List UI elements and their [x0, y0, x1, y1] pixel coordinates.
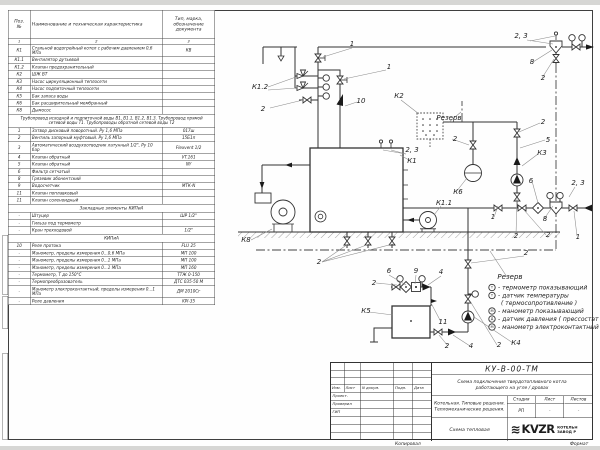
spec-header-name: Наименование и техническая характеристик…	[30, 10, 162, 39]
spec-cell-type	[162, 190, 214, 197]
spec-row: 6Фильтр сетчатый	[8, 168, 215, 175]
spec-cell-pos: -	[8, 227, 30, 234]
logo-caption: КОТЕЛЬН ЗАВОД Р	[557, 425, 577, 434]
spec-cell-name: Клапан обратный	[30, 161, 162, 168]
schematic-label: 2	[497, 341, 502, 349]
schematic-label: К1	[407, 157, 416, 165]
spec-cell-pos: 11	[8, 190, 30, 197]
sheet-value: -	[536, 404, 564, 419]
schematic-label: 11	[439, 318, 448, 326]
spec-row: Трубопровод исходной и подпиточной воды …	[8, 114, 215, 127]
schematic-label: 2	[514, 232, 519, 240]
spec-cell-pos: К8	[8, 107, 30, 114]
spec-cell-name: Термометр, Т до 150°С	[30, 271, 162, 278]
schematic-label: 2, 3	[571, 179, 584, 187]
spec-cell-pos: -	[8, 286, 30, 298]
spec-cell-type: 017ш	[162, 127, 214, 134]
spec-section-title: КИПиА	[8, 234, 215, 242]
schematic-label: 1	[491, 213, 495, 221]
spec-row: -Манометр, пределы измерения 0...1 МПаМП…	[8, 257, 215, 264]
schematic-label: 8	[530, 58, 535, 66]
spec-cell-type	[162, 93, 214, 100]
spec-row: К8Дымосос	[8, 107, 215, 114]
spec-row: 11Клапан соленоидный	[8, 197, 215, 204]
schematic-label: 4	[469, 342, 473, 350]
schematic-label: К4	[511, 339, 520, 347]
spec-row: -Манометр электроконтактный, пределы изм…	[8, 286, 215, 298]
schematic-label: 2	[524, 249, 529, 257]
spec-cell-type	[162, 168, 214, 175]
spec-header-row: Поз. № Наименование и техническая характ…	[8, 10, 215, 39]
spec-cell-pos: 4	[8, 154, 30, 161]
spec-cell-type: 15Б1п	[162, 134, 214, 141]
spec-row: К1.1Вентилятор дутьевой	[8, 56, 215, 63]
spec-cell-type: KPI-35	[162, 298, 214, 305]
legend-item: - датчик давления ( прессостат )	[498, 316, 600, 323]
document-code: КУ-В-00-ТМ	[431, 363, 592, 375]
spec-cell-name: Водосчетчик	[30, 182, 162, 189]
schematic-label: К3	[537, 149, 546, 157]
spec-cell-pos: -	[8, 212, 30, 219]
schematic-label: 1	[350, 40, 354, 48]
schematic-label: 2	[372, 279, 377, 287]
spec-row: 9ВодосчетчикМТК-N	[8, 182, 215, 189]
spec-cell-pos: К5	[8, 93, 30, 100]
spec-cell-pos: К6	[8, 100, 30, 107]
spec-row: 1Затвор дисковый поворотный. Ру 1,6 МПа0…	[8, 127, 215, 134]
schematic-label: 4	[439, 268, 443, 276]
spec-row: 4Клапан обратныйVT.161	[8, 154, 215, 161]
spec-cell-name: ШЖ ВТ	[30, 71, 162, 78]
spec-cell-type	[162, 78, 214, 85]
spec-cell-pos: 8	[8, 175, 30, 182]
schematic-label: К5	[361, 307, 371, 315]
spec-cell-name: Клапан обратный	[30, 154, 162, 161]
scheme-name: Схема тепловая	[431, 418, 507, 441]
spec-row: -Гильза под термометр	[8, 220, 215, 227]
spec-cell-name: Клапан предохранительный	[30, 64, 162, 71]
spec-cell-name: Гильза под термометр	[30, 220, 162, 227]
rev-header-list: Лист	[346, 386, 356, 391]
schematic-label: 2	[317, 258, 322, 266]
logo-word: KVZR	[522, 424, 555, 436]
spec-cell-name: Манометр, пределы измерения 0...1 МПа	[30, 257, 162, 264]
title-block: Изм. Лист N докум. Подп. Дата Проект. Пр…	[330, 362, 593, 440]
spec-cell-type: VT.161	[162, 154, 214, 161]
sheet-label: Лист	[536, 396, 564, 404]
spec-cell-name: Реле протока	[30, 242, 162, 249]
spec-table: Поз. № Наименование и техническая характ…	[8, 10, 215, 305]
spec-cell-pos: 2	[8, 134, 30, 141]
spec-cell-pos: К3	[8, 78, 30, 85]
schematic-label: К6	[453, 188, 463, 196]
rev-header-data: Дата	[414, 386, 424, 391]
spec-cell-name: Манометр электроконтактный, пределы изме…	[30, 286, 162, 298]
spec-row: -ШтуцерШР 1/2"	[8, 212, 215, 219]
stage-grid: Стадия Лист Листов РП - -	[507, 396, 592, 418]
legend-item: - термометр показывающий	[498, 285, 587, 292]
spec-cell-type	[162, 56, 214, 63]
rev-header-ndoc: N докум.	[362, 386, 379, 391]
spec-cell-type	[162, 64, 214, 71]
spec-row: 2Вентиль запорный муфтовый. Ру 1,6 МПа15…	[8, 134, 215, 141]
legend-item: - манометр электроконтактный	[498, 324, 599, 331]
sheets-value: -	[565, 404, 593, 419]
spec-row: К4Насос подпиточный теплосети	[8, 85, 215, 92]
schematic-label: Резерв	[436, 114, 461, 122]
spec-row: -Кран трехходовой1/2"	[8, 227, 215, 234]
schematic-label: 9	[414, 267, 419, 275]
spec-header-pos: Поз. №	[8, 10, 30, 39]
spec-row: 11Клапан поплавковый	[8, 190, 215, 197]
spec-cell-pos: К1	[8, 45, 30, 57]
spec-cell-name: Фильтр сетчатый	[30, 168, 162, 175]
spec-cell-type	[162, 85, 214, 92]
schematic-label: К2	[394, 92, 404, 100]
spec-cell-pos: К4	[8, 85, 30, 92]
schematic-label: 2	[261, 105, 266, 113]
schematic-label: 2	[541, 74, 546, 82]
schematic-label: 1	[576, 233, 580, 241]
spec-row: -Манометр, пределы измерения 0...0,6 МПа…	[8, 250, 215, 257]
spec-row: -ТермопреобразовательДТС 035-50 М	[8, 278, 215, 285]
spec-cell-name: Бак запаса воды	[30, 93, 162, 100]
spec-cell-type: МП 160	[162, 264, 214, 271]
spec-cell-pos: -	[8, 271, 30, 278]
spec-cell-name: Вентиль запорный муфтовый. Ру 1,6 МПа	[30, 134, 162, 141]
spec-row: 3Автоматический воздухоотводчик латунный…	[8, 142, 215, 154]
stage-value: РП	[508, 404, 536, 419]
spec-cell-type: ШР 1/2"	[162, 212, 214, 219]
spec-cell-pos: К1.2	[8, 64, 30, 71]
spec-row: -Манометр, пределы измерения 0...1 МПаМП…	[8, 264, 215, 271]
role-checked: Проверил	[333, 402, 352, 407]
spec-cell-name: Реле давления	[30, 298, 162, 305]
schematic-label: 5	[546, 136, 551, 144]
legend-symbol-letter: Д	[491, 317, 494, 321]
spec-cell-name: Вентилятор дутьевой	[30, 56, 162, 63]
spec-cell-pos: 3	[8, 142, 30, 154]
schematic-label: 2	[546, 231, 551, 239]
project-name: Котельная. Типовые решения. Тепломеханич…	[431, 396, 507, 418]
schematic-label: 6	[529, 177, 534, 185]
spec-row: 5Клапан обратныйNY	[8, 161, 215, 168]
role-project: Проект.	[333, 394, 348, 399]
spec-cell-name: Клапан соленоидный	[30, 197, 162, 204]
rev-header-izm: Изм.	[332, 386, 341, 391]
spec-cell-name: Дымосос	[30, 107, 162, 114]
format-label: Формат	[570, 442, 588, 447]
document-subtitle: Схема подключения твердотопливного котла…	[431, 375, 592, 396]
legend-item-line2: ( термосопротивление )	[501, 300, 577, 307]
spec-cell-pos: 11	[8, 197, 30, 204]
logo-waves-icon: ≋	[511, 424, 521, 436]
spec-row: К1.2Клапан предохранительный	[8, 64, 215, 71]
schematic-label: 2, 3	[514, 32, 527, 40]
spec-cell-pos: 1	[8, 127, 30, 134]
spec-row: КИПиА	[8, 234, 215, 242]
spec-cell-pos: -	[8, 264, 30, 271]
spec-row: К5Бак запаса воды	[8, 93, 215, 100]
drawing-sheet: 11К1.2210К2Резерв2К6К1.12, 3К12, 38225К3…	[0, 0, 600, 450]
spec-cell-name: Затвор дисковый поворотный. Ру 1,6 МПа	[30, 127, 162, 134]
schematic-label: 1	[387, 63, 391, 71]
spec-cell-type	[162, 175, 214, 182]
spec-cell-name: Манометр, пределы измерения 0...1 МПа	[30, 264, 162, 271]
spec-cell-type	[162, 100, 214, 107]
logo-caption-line2: ЗАВОД Р	[557, 430, 576, 435]
spec-cell-type: МП 100	[162, 250, 214, 257]
schematic-label: Резерв	[497, 273, 522, 281]
spec-cell-name: Автоматический воздухоотводчик латунный …	[30, 142, 162, 154]
legend-item: - манометр показывающий	[498, 308, 584, 315]
spec-cell-pos: 5	[8, 161, 30, 168]
copied-label: Копировал	[395, 442, 421, 447]
spec-cell-pos: -	[8, 250, 30, 257]
spec-cell-name: Манометр, пределы измерения 0...0,6 МПа	[30, 250, 162, 257]
spec-cell-name: Термопреобразователь	[30, 278, 162, 285]
spec-cell-pos: -	[8, 298, 30, 305]
spec-cell-pos: 9	[8, 182, 30, 189]
spec-cell-name: Штуцер	[30, 212, 162, 219]
instrument-legend: Т- термометр показывающийТ- датчик темпе…	[489, 284, 600, 331]
schematic-label: 2	[453, 135, 458, 143]
spec-cell-type	[162, 71, 214, 78]
schematic-label: К1.2	[252, 83, 269, 91]
spec-cell-pos: -	[8, 278, 30, 285]
spec-row: Закладные элементы КИПиА	[8, 204, 215, 212]
spec-cell-type	[162, 220, 214, 227]
schematic-label: 8	[543, 215, 548, 223]
spec-cell-pos: 6	[8, 168, 30, 175]
spec-cell-pos: К1.1	[8, 56, 30, 63]
spec-cell-type: МП 100	[162, 257, 214, 264]
spec-cell-type: FLU 25	[162, 242, 214, 249]
spec-row: 10Реле протокаFLU 25	[8, 242, 215, 249]
spec-row: К1Стальной водогрейный котел с рабочим д…	[8, 45, 215, 57]
legend-symbol-letter: М	[490, 325, 493, 329]
spec-cell-name: Насос подпиточный теплосети	[30, 85, 162, 92]
spec-cell-pos: -	[8, 257, 30, 264]
legend-item: - датчик температуры	[498, 293, 569, 300]
spec-cell-type: 1/2"	[162, 227, 214, 234]
schematic-label: 2	[541, 118, 546, 126]
spec-section-title: Закладные элементы КИПиА	[8, 204, 215, 212]
spec-cell-type: ТТЖ 0-150	[162, 271, 214, 278]
spec-cell-type	[162, 107, 214, 114]
spec-row: К2ШЖ ВТ	[8, 71, 215, 78]
spec-cell-pos: -	[8, 220, 30, 227]
spec-span-note: Трубопровод исходной и подпиточной воды …	[8, 114, 215, 127]
schematic-label: 10	[357, 97, 366, 105]
schematic-label: 2	[445, 342, 450, 350]
company-logo: ≋ KVZR КОТЕЛЬН ЗАВОД Р	[507, 418, 592, 441]
legend-symbol-letter: М	[490, 309, 493, 313]
spec-cell-type: ДТС 035-50 М	[162, 278, 214, 285]
spec-cell-pos: К2	[8, 71, 30, 78]
schematic-label: К1.1	[436, 199, 452, 207]
spec-cell-name: Насос циркуляционный теплосети	[30, 78, 162, 85]
spec-cell-type: КВ	[162, 45, 214, 57]
rev-header-podp: Подп.	[395, 386, 406, 391]
spec-cell-name: Кран трехходовой	[30, 227, 162, 234]
spec-row: К6Бак расширительный мембранный	[8, 100, 215, 107]
spec-cell-type: МТК-N	[162, 182, 214, 189]
spec-row: 8Грязевик абонентский	[8, 175, 215, 182]
spec-cell-type: Flexvent 1/2	[162, 142, 214, 154]
spec-cell-name: Бак расширительный мембранный	[30, 100, 162, 107]
spec-row: К3Насос циркуляционный теплосети	[8, 78, 215, 85]
sheets-label: Листов	[565, 396, 593, 404]
spec-cell-name: Клапан поплавковый	[30, 190, 162, 197]
spec-row: -Реле давленияKPI-35	[8, 298, 215, 305]
spec-cell-pos: 10	[8, 242, 30, 249]
spec-cell-type: NY	[162, 161, 214, 168]
schematic-label: 6	[387, 267, 392, 275]
spec-cell-type	[162, 197, 214, 204]
spec-cell-type: ДМ 2010Сг	[162, 286, 214, 298]
spec-cell-name: Грязевик абонентский	[30, 175, 162, 182]
spec-row: -Термометр, Т до 150°СТТЖ 0-150	[8, 271, 215, 278]
role-gip: ГИП	[333, 410, 341, 415]
schematic-label: 2, 3	[405, 146, 418, 154]
spec-header-type: Тип, марка, обозначение документа	[162, 10, 214, 39]
schematic-label: К8	[241, 236, 251, 244]
stage-label: Стадия	[508, 396, 536, 404]
spec-cell-name: Стальной водогрейный котел с рабочим дав…	[30, 45, 162, 57]
